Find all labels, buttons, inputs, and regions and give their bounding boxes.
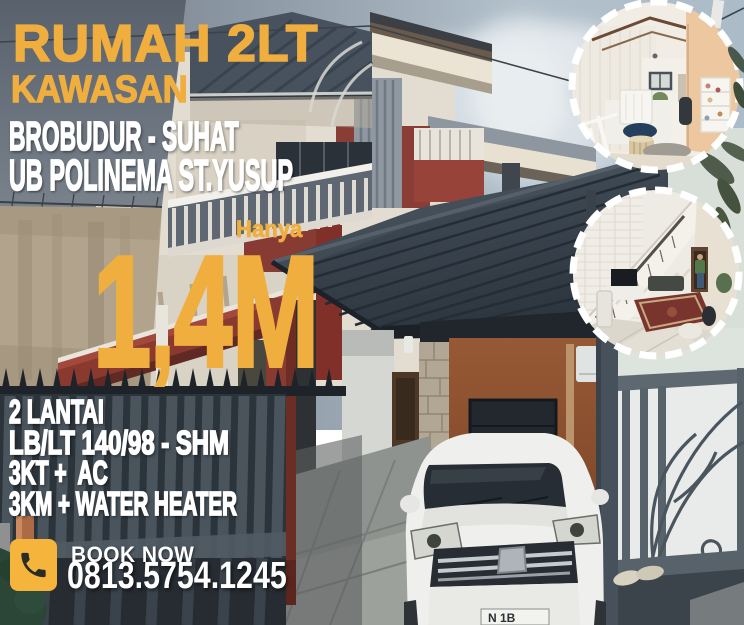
svg-text:N 1B: N 1B xyxy=(488,611,523,625)
